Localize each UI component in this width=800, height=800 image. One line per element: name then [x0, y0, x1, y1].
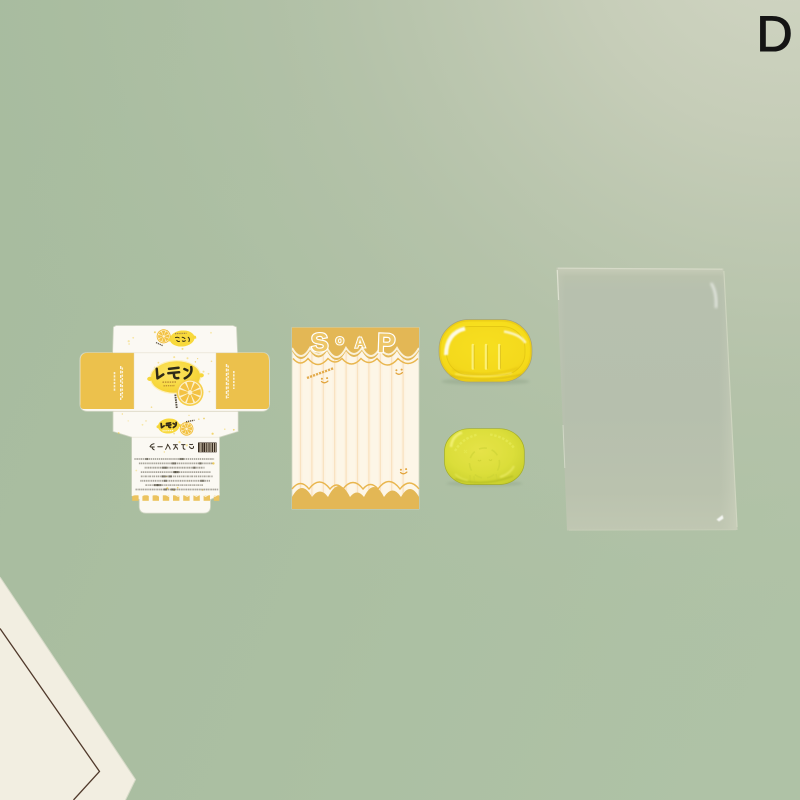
svg-text:A: A	[355, 335, 367, 351]
svg-text:o: o	[336, 332, 345, 348]
svg-text:D: D	[757, 6, 793, 62]
svg-text:P: P	[377, 328, 396, 359]
svg-text:S: S	[310, 327, 329, 358]
